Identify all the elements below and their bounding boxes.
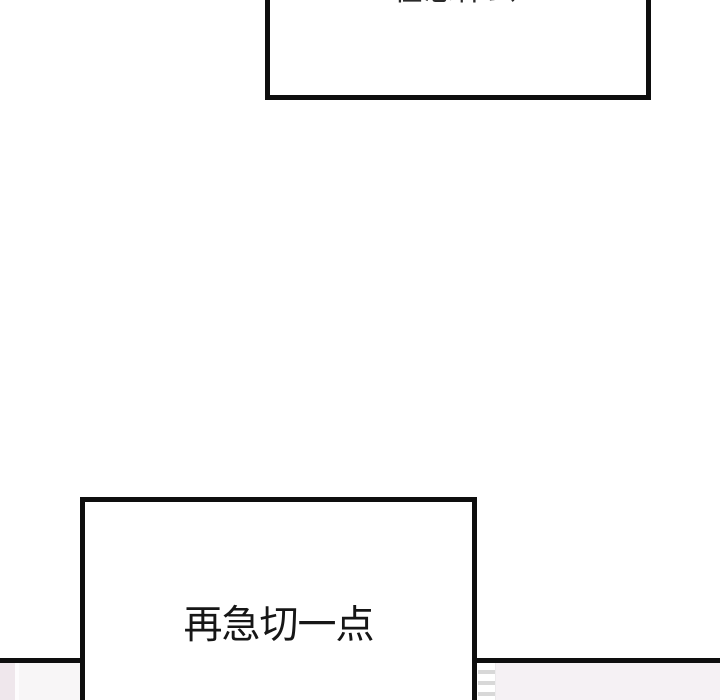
speech-box-bottom: 再急切一点 xyxy=(80,497,477,700)
lower-panel-left-pink-strip xyxy=(0,663,15,700)
speech-text-top-clipped: 在想什么 xyxy=(270,0,640,9)
lower-panel-striped-column xyxy=(478,663,496,700)
speech-box-top: 在想什么 xyxy=(265,0,651,100)
lower-panel-right-fill xyxy=(496,663,720,700)
speech-text-bottom: 再急切一点 xyxy=(183,603,373,649)
comic-strip-canvas: 再急切一点 在想什么 xyxy=(0,0,720,700)
lower-panel-left-fill xyxy=(19,663,83,700)
